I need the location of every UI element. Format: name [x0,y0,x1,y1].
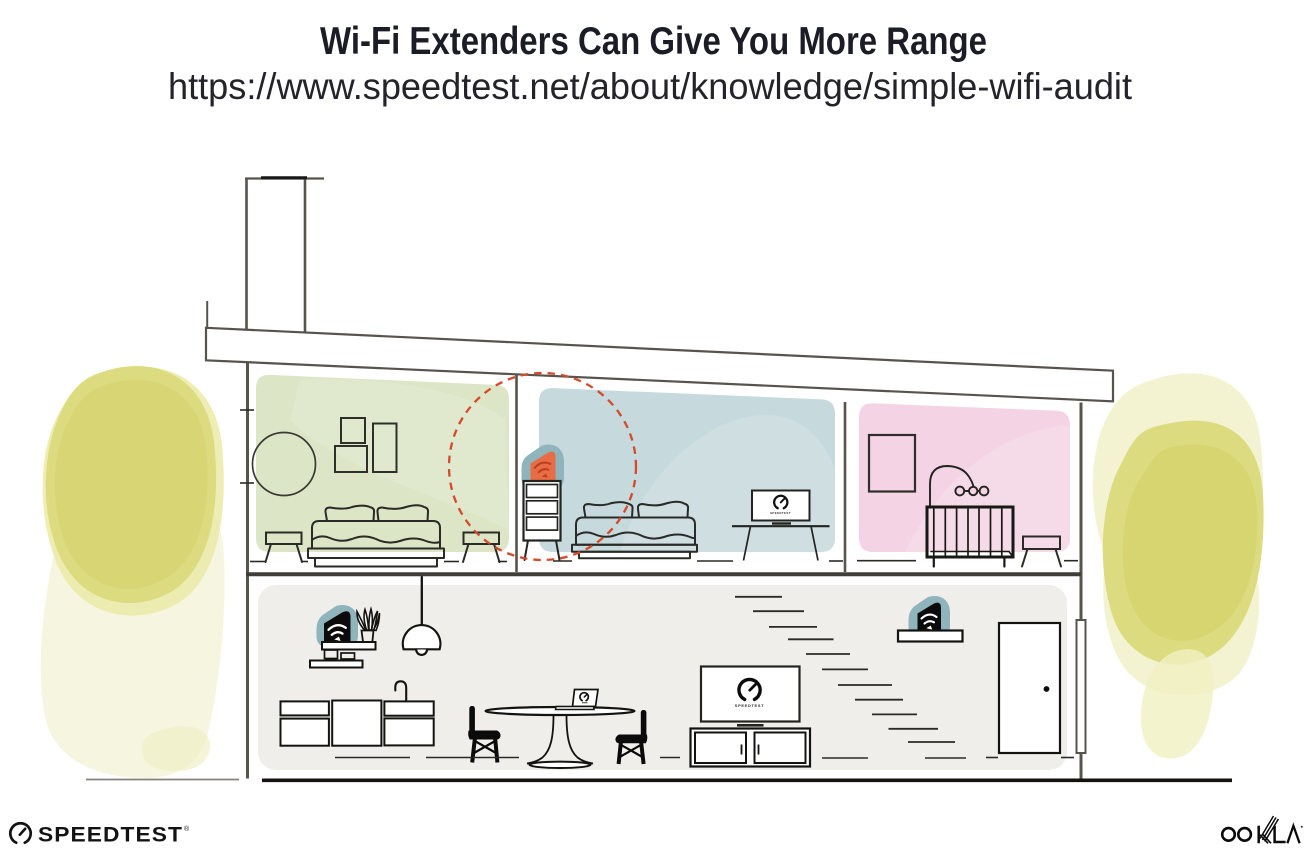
svg-text:SPEEDTEST: SPEEDTEST [735,703,764,708]
svg-text:Wi-Fi Extenders Can Give You M: Wi-Fi Extenders Can Give You More Range [320,20,987,63]
svg-text:https://www.speedtest.net/abou: https://www.speedtest.net/about/knowledg… [168,66,1133,107]
svg-text:SPEEDTEST: SPEEDTEST [770,511,791,515]
svg-text:SPEEDTEST: SPEEDTEST [38,823,183,847]
svg-text:®: ® [184,825,190,833]
